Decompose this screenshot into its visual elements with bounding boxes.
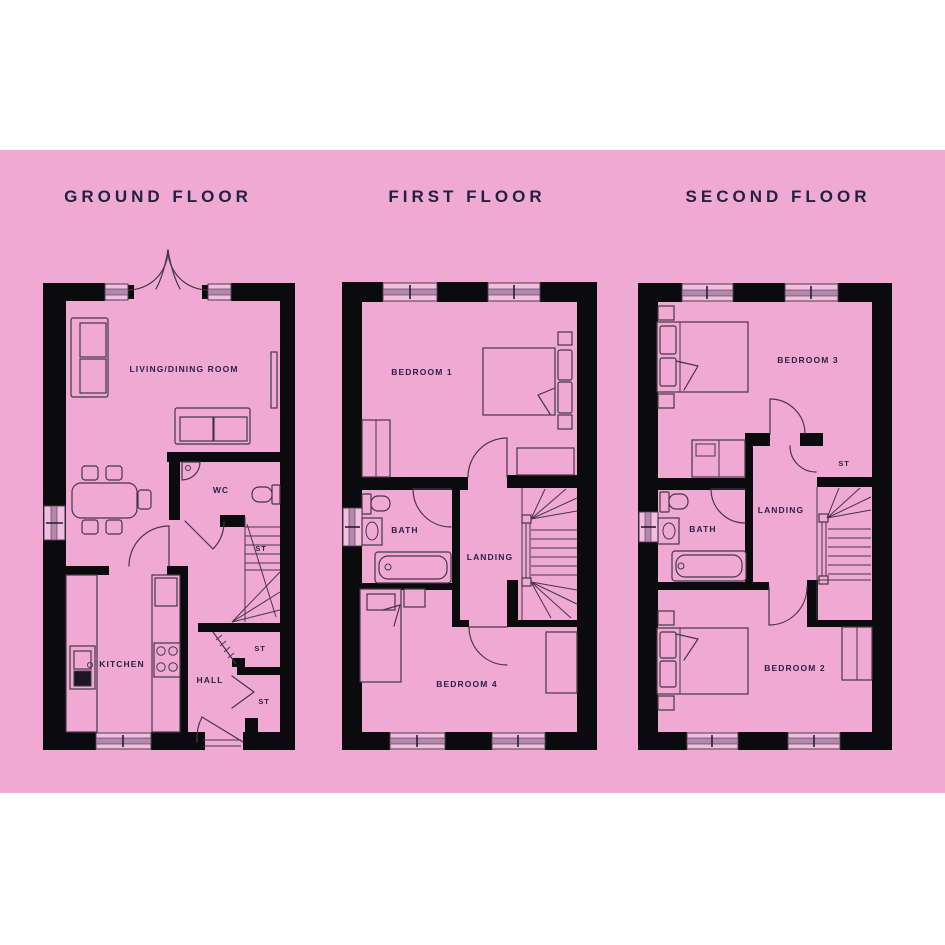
dining-chair bbox=[82, 520, 98, 534]
bed-double bbox=[657, 628, 748, 694]
pillow bbox=[660, 661, 676, 687]
dining-chair bbox=[138, 490, 151, 509]
room-label-landing: LANDING bbox=[758, 505, 804, 515]
floor-plans-canvas: LIVING/DINING ROOM WC ST KITCHEN HALL ST… bbox=[0, 0, 945, 945]
pillow bbox=[558, 350, 572, 380]
bedside-table bbox=[404, 589, 425, 607]
room-label-bedroom-3: BEDROOM 3 bbox=[777, 355, 838, 365]
toilet bbox=[660, 492, 688, 512]
bedside-table bbox=[558, 332, 572, 345]
sofa-small bbox=[175, 408, 250, 444]
first-staircase bbox=[522, 488, 577, 620]
wardrobe bbox=[362, 420, 390, 477]
bed-single bbox=[360, 589, 401, 682]
window bbox=[96, 733, 151, 749]
window bbox=[639, 512, 658, 542]
pillow bbox=[660, 632, 676, 658]
bedside-table bbox=[658, 611, 674, 625]
room-label-bath: BATH bbox=[391, 525, 418, 535]
room-label-bedroom-4: BEDROOM 4 bbox=[436, 679, 497, 689]
basin bbox=[362, 518, 382, 545]
first-floor-plan: BEDROOM 1 BATH LANDING BEDROOM 4 bbox=[342, 282, 597, 750]
window bbox=[687, 733, 738, 749]
sofa-cushion bbox=[80, 323, 106, 357]
room-label-bath: BATH bbox=[689, 524, 716, 534]
wc-corner-basin bbox=[182, 462, 200, 480]
french-doors bbox=[128, 250, 208, 290]
bath-door-swing bbox=[711, 489, 745, 523]
toilet bbox=[252, 485, 280, 504]
bathtub bbox=[375, 552, 451, 583]
floorplan-sheet: GROUND FLOOR FIRST FLOOR SECOND FLOOR bbox=[0, 0, 945, 945]
sofa-cushion bbox=[180, 417, 213, 441]
room-label-bedroom-2: BEDROOM 2 bbox=[764, 663, 825, 673]
dining-chair bbox=[106, 520, 122, 534]
window bbox=[788, 733, 840, 749]
second-floor-plan: BEDROOM 3 ST BATH LANDING BEDROOM 2 bbox=[638, 283, 892, 750]
window bbox=[343, 508, 362, 546]
bathtub bbox=[672, 551, 746, 581]
window bbox=[682, 284, 733, 301]
window bbox=[383, 283, 437, 301]
bedroom3-door-swing bbox=[770, 399, 805, 434]
kitchen-door-swing bbox=[129, 526, 169, 566]
bedroom4-door-swing bbox=[469, 627, 507, 665]
window bbox=[785, 284, 838, 301]
hob bbox=[154, 643, 180, 677]
room-label-st-cupboard-2: ST bbox=[258, 697, 269, 706]
sofa-cushion bbox=[80, 359, 106, 393]
sofa-cushion bbox=[214, 417, 247, 441]
cupboard-door-1 bbox=[213, 632, 236, 664]
window bbox=[488, 283, 540, 301]
chest-of-drawers bbox=[517, 448, 574, 475]
dining-set bbox=[72, 466, 151, 534]
kitchen-counters bbox=[66, 575, 180, 732]
pillow bbox=[660, 326, 676, 354]
stair-label-st: ST bbox=[255, 544, 266, 553]
window bbox=[208, 284, 231, 300]
newel-post bbox=[522, 578, 531, 586]
pillow bbox=[558, 382, 572, 413]
room-label-hall: HALL bbox=[196, 675, 223, 685]
wardrobe bbox=[842, 627, 872, 680]
bedside-table bbox=[558, 415, 572, 429]
sofa-large bbox=[71, 318, 108, 397]
bath-door-swing bbox=[413, 489, 451, 527]
wardrobe bbox=[692, 440, 745, 477]
dining-table bbox=[72, 483, 137, 518]
room-label-st-closet: ST bbox=[838, 459, 849, 468]
room-label-kitchen: KITCHEN bbox=[99, 659, 144, 669]
bedside-table bbox=[658, 696, 674, 710]
room-label-wc: WC bbox=[213, 485, 229, 495]
ground-floor-plan: LIVING/DINING ROOM WC ST KITCHEN HALL ST… bbox=[43, 250, 295, 750]
room-label-living-dining: LIVING/DINING ROOM bbox=[129, 364, 238, 374]
bed-double bbox=[483, 348, 572, 415]
bed-double bbox=[657, 322, 748, 392]
room-label-landing: LANDING bbox=[467, 552, 513, 562]
room-label-st-cupboard-1: ST bbox=[254, 644, 265, 653]
bedroom2-door-swing bbox=[769, 587, 807, 625]
fridge bbox=[155, 578, 177, 606]
cupboard-door-2 bbox=[232, 676, 254, 708]
ground-staircase bbox=[232, 517, 280, 622]
pillow bbox=[660, 358, 676, 386]
bedside-table bbox=[658, 394, 674, 408]
window bbox=[44, 506, 65, 540]
second-staircase bbox=[817, 487, 871, 620]
newel-post bbox=[819, 514, 828, 522]
room-label-bedroom-1: BEDROOM 1 bbox=[391, 367, 452, 377]
window bbox=[390, 733, 445, 749]
kitchen-sink bbox=[70, 646, 95, 689]
st-closet-door-swing bbox=[790, 446, 816, 472]
window bbox=[105, 284, 128, 300]
dining-chair bbox=[106, 466, 122, 480]
toilet bbox=[362, 494, 390, 514]
bedroom1-door-swing bbox=[468, 438, 507, 477]
radiator bbox=[271, 352, 277, 408]
newel-post bbox=[522, 515, 531, 523]
window bbox=[492, 733, 545, 749]
bedside-table bbox=[658, 306, 674, 320]
dining-chair bbox=[82, 466, 98, 480]
wc-door-swing bbox=[185, 521, 224, 549]
basin bbox=[658, 518, 679, 544]
chest-of-drawers bbox=[546, 632, 577, 693]
